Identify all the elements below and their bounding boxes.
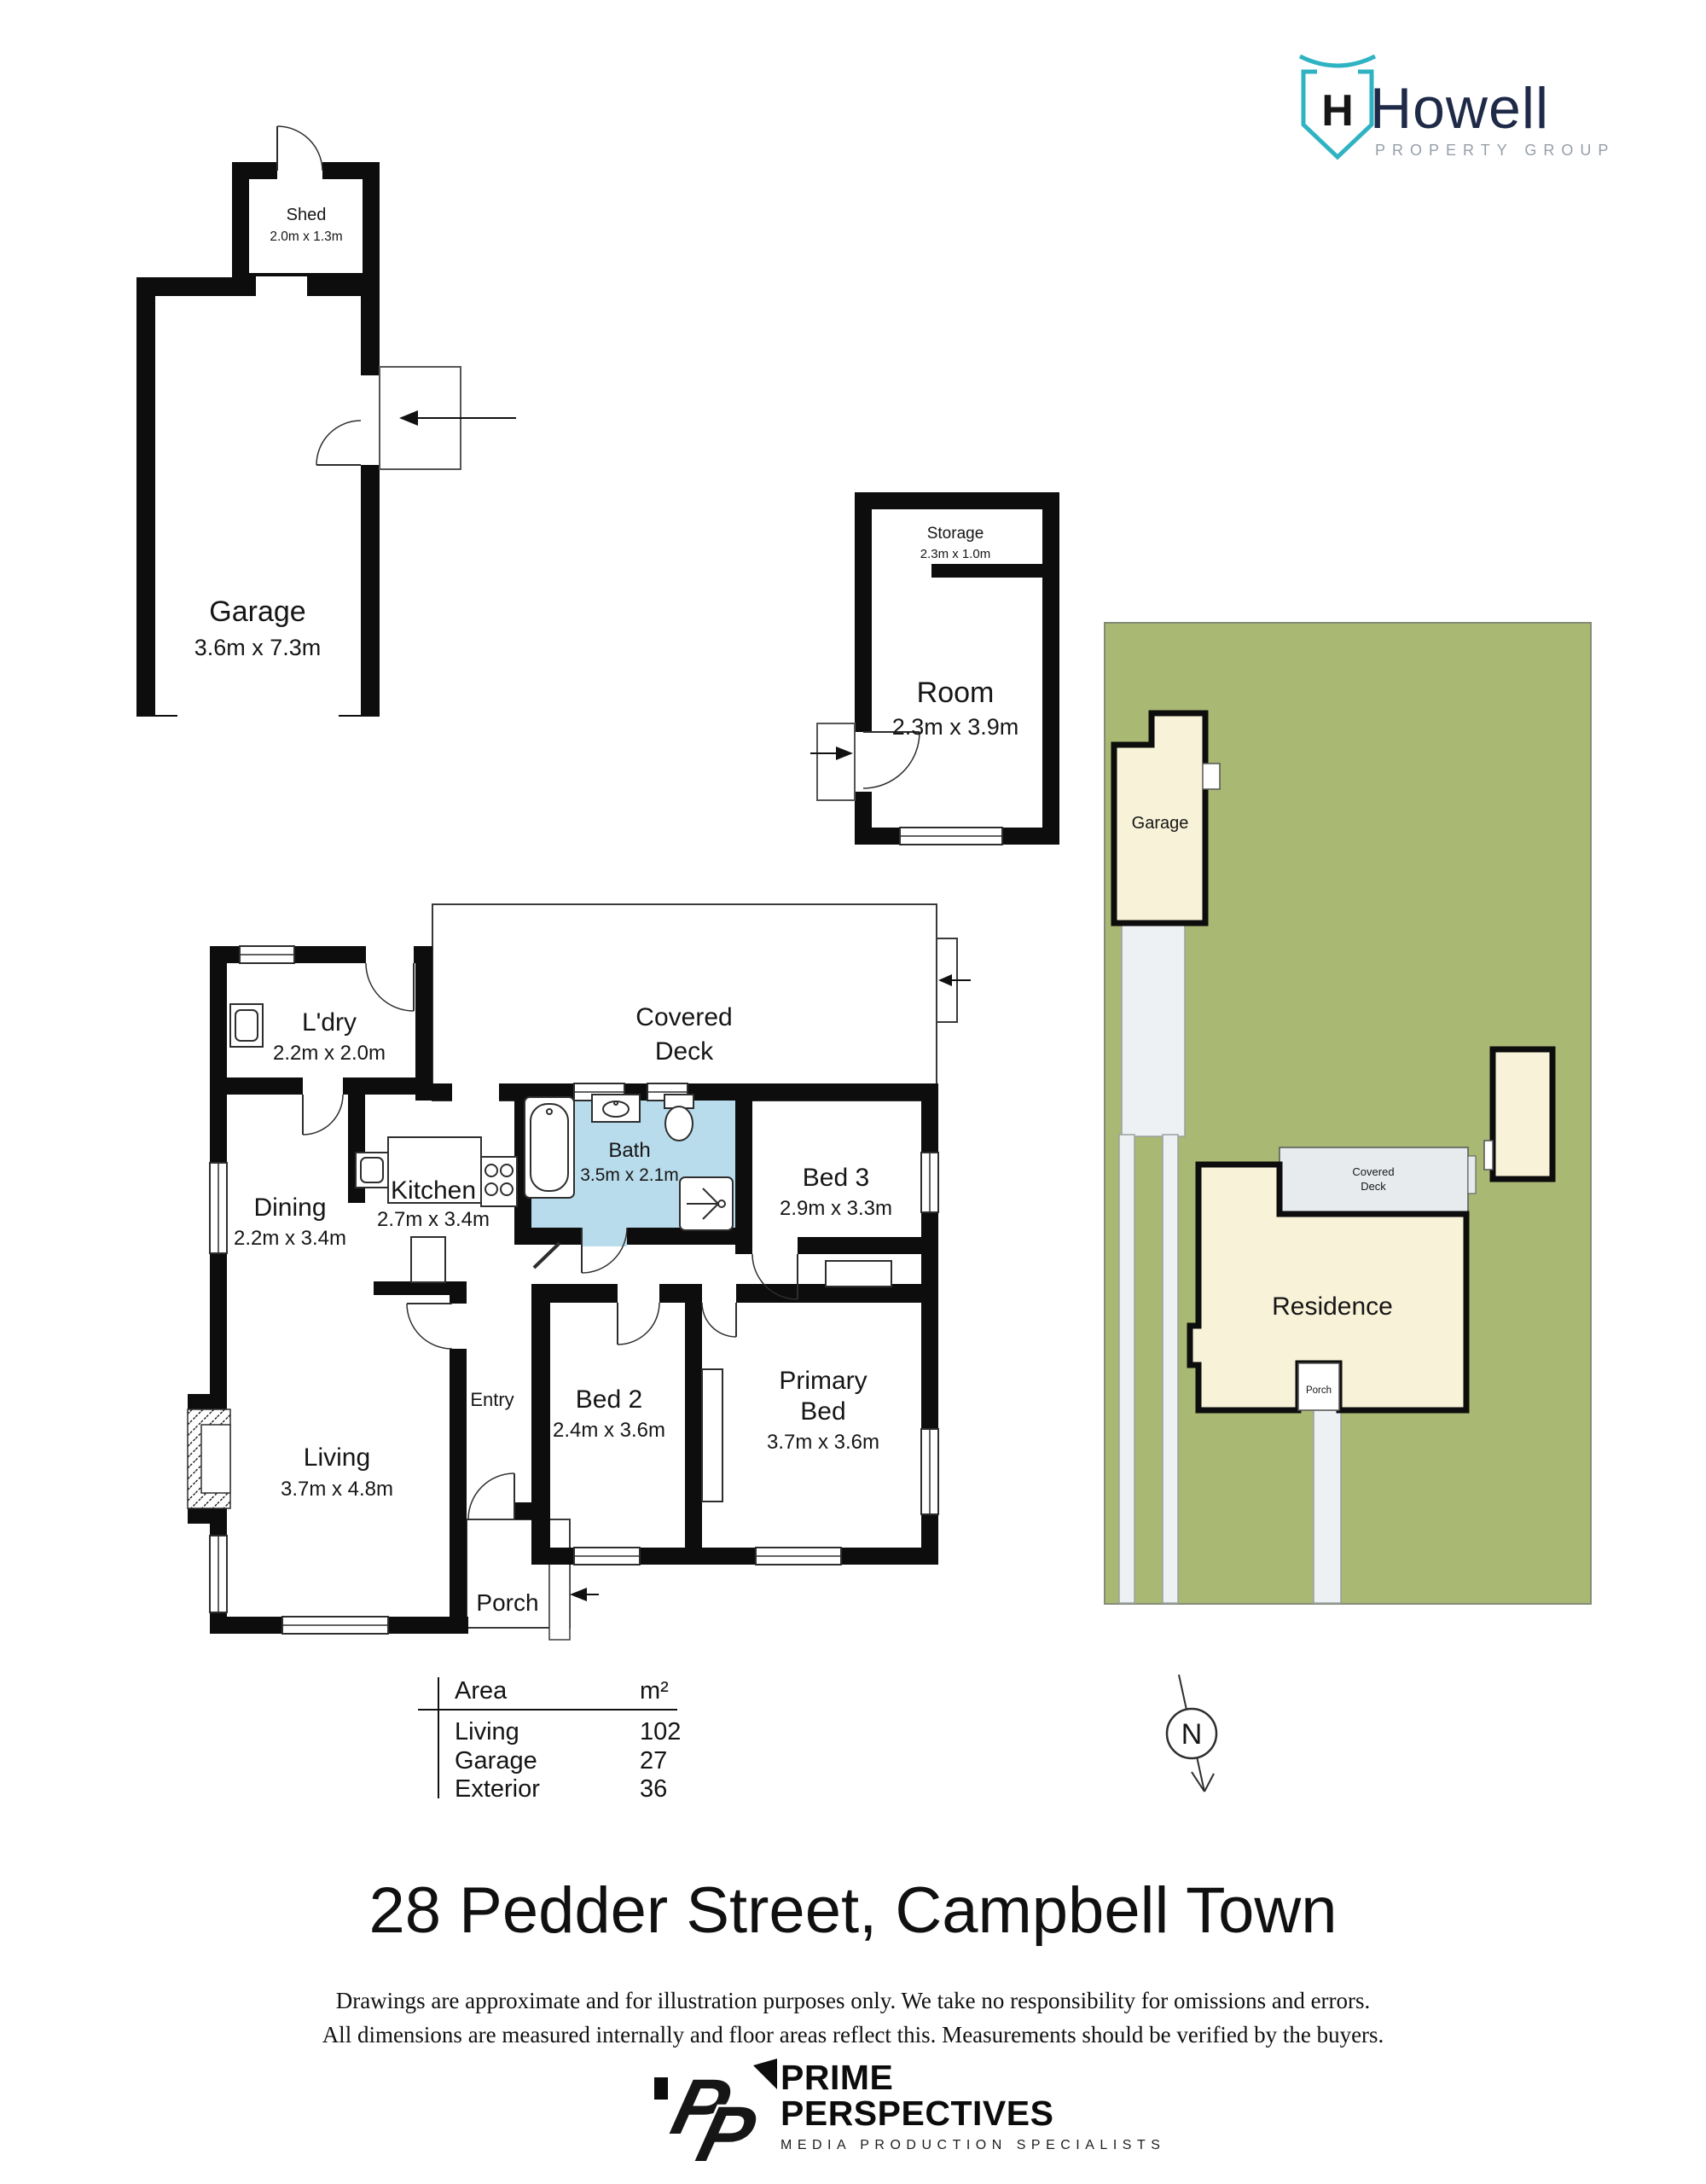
disclaimer-line-2: All dimensions are measured internally a… xyxy=(0,2018,1706,2052)
area-row-value: 27 xyxy=(640,1747,667,1775)
shed-label: Shed xyxy=(287,206,327,224)
kitchen-label: Kitchen xyxy=(391,1176,476,1205)
brand-name: Howell xyxy=(1370,75,1549,142)
footer-logo-line-2: PERSPECTIVES xyxy=(780,2095,1165,2131)
bath-dims: 3.5m x 2.1m xyxy=(580,1165,679,1185)
brand-monogram: H xyxy=(1321,86,1354,136)
dining-label: Dining xyxy=(253,1194,326,1222)
bed3-label: Bed 3 xyxy=(803,1164,869,1192)
ldry-label: L'dry xyxy=(302,1008,357,1037)
bed2-dims: 2.4m x 3.6m xyxy=(553,1419,665,1442)
disclaimer-line-1: Drawings are approximate and for illustr… xyxy=(0,1984,1706,2018)
disclaimer: Drawings are approximate and for illustr… xyxy=(0,1984,1706,2052)
area-row-value: 102 xyxy=(640,1718,681,1746)
bed3-dims: 2.9m x 3.3m xyxy=(780,1197,892,1220)
brand-shield-icon: H xyxy=(1295,44,1380,164)
area-row-label: Living xyxy=(455,1718,519,1745)
area-row-exterior: Exterior 36 xyxy=(455,1775,711,1804)
primary-dims: 3.7m x 3.6m xyxy=(767,1431,879,1454)
site-garage-label: Garage xyxy=(1132,814,1189,833)
residence-floorplan: Covered Deck L'dry 2.2m x 2.0m Dining 2.… xyxy=(162,896,972,1647)
footer-logo-line-3: MEDIA PRODUCTION SPECIALISTS xyxy=(780,2138,1165,2153)
porch-entry-arrow-icon xyxy=(570,1588,587,1601)
garage-label: Garage xyxy=(209,595,305,628)
garage-dims: 3.6m x 7.3m xyxy=(194,635,322,660)
floorplan-page: { "brand": { "name": "Howell", "tagline"… xyxy=(0,0,1706,2184)
area-row-living: Living 102 xyxy=(455,1718,711,1746)
area-table-header-area: Area xyxy=(455,1677,507,1705)
deck-label-2: Deck xyxy=(655,1037,714,1066)
area-table-hline xyxy=(418,1709,677,1711)
area-table-vline xyxy=(438,1677,439,1798)
porch-label: Porch xyxy=(476,1589,538,1616)
footer-logo-text: PRIME PERSPECTIVES MEDIA PRODUCTION SPEC… xyxy=(780,2059,1165,2153)
entry-label: Entry xyxy=(470,1389,514,1410)
kitchen-dims: 2.7m x 3.4m xyxy=(377,1208,490,1231)
site-porch-label: Porch xyxy=(1306,1385,1332,1396)
north-arrow: N xyxy=(1156,1659,1267,1813)
site-plan: Garage Covered Deck Residence Porch xyxy=(1100,619,1599,1608)
page-title: 28 Pedder Street, Campbell Town xyxy=(0,1873,1706,1948)
area-row-label: Garage xyxy=(455,1747,537,1774)
primary-label-2: Bed xyxy=(800,1397,845,1426)
bed2-label: Bed 2 xyxy=(576,1385,642,1414)
site-residence-label: Residence xyxy=(1272,1292,1393,1321)
area-row-garage: Garage 27 xyxy=(455,1747,711,1775)
primary-label-1: Primary xyxy=(779,1367,867,1395)
area-row-value: 36 xyxy=(640,1775,667,1804)
covered-deck-area xyxy=(432,904,937,1101)
site-deck-label-1: Covered xyxy=(1352,1165,1394,1178)
area-table: Area m² Living 102 Garage 27 Exterior 36 xyxy=(409,1670,699,1815)
north-label: N xyxy=(1181,1718,1203,1751)
storage-label: Storage xyxy=(927,525,984,543)
footer-monogram-icon: P P xyxy=(653,2059,780,2174)
storage-room-floorplan: Storage 2.3m x 1.0m Room 2.3m x 3.9m xyxy=(810,482,1100,874)
site-room-building xyxy=(1493,1049,1552,1179)
ldry-dims: 2.2m x 2.0m xyxy=(273,1042,386,1065)
brand-tagline: PROPERTY GROUP xyxy=(1375,142,1615,160)
room-label: Room xyxy=(917,677,995,709)
shed-dims: 2.0m x 1.3m xyxy=(270,229,342,244)
living-label: Living xyxy=(304,1443,370,1472)
storage-dims: 2.3m x 1.0m xyxy=(920,547,991,561)
bath-label: Bath xyxy=(608,1139,650,1162)
area-row-label: Exterior xyxy=(455,1775,540,1803)
site-deck-label-2: Deck xyxy=(1361,1180,1386,1193)
garage-shed-floorplan: Shed 2.0m x 1.3m Garage 3.6m x 7.3m xyxy=(128,119,529,717)
room-dims: 2.3m x 3.9m xyxy=(892,714,1019,740)
living-dims: 3.7m x 4.8m xyxy=(281,1478,393,1501)
dining-dims: 2.2m x 3.4m xyxy=(234,1227,346,1250)
room-entry-step xyxy=(817,723,855,800)
deck-label-1: Covered xyxy=(635,1003,732,1031)
area-table-header-unit: m² xyxy=(640,1677,669,1705)
footer-logo-line-1: PRIME xyxy=(780,2059,1165,2095)
